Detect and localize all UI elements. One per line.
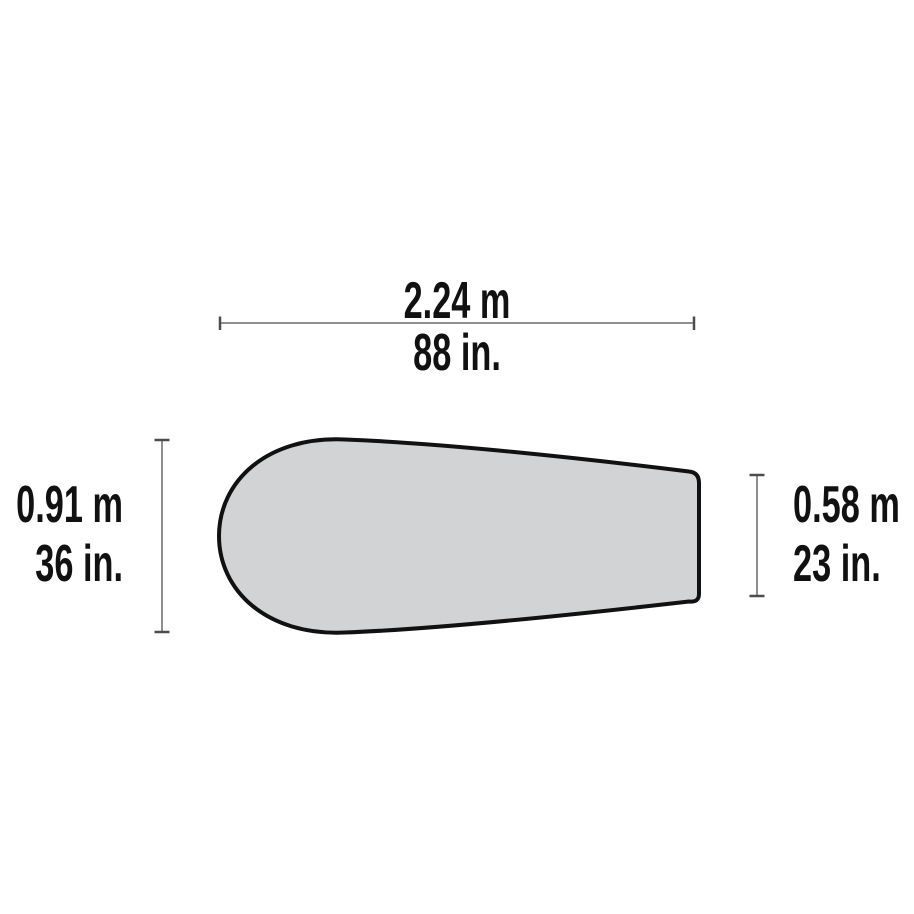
product-outline-shape — [219, 439, 699, 632]
foot-width-label-imperial: 23 in. — [793, 535, 881, 593]
length-label-metric: 2.24 m — [404, 272, 511, 330]
head-width-label-imperial: 36 in. — [35, 535, 123, 593]
length-label-imperial: 88 in. — [413, 324, 501, 382]
head-width-label-metric: 0.91 m — [16, 476, 123, 534]
foot-width-label-metric: 0.58 m — [793, 476, 900, 534]
dimension-diagram: 2.24 m 88 in. 0.91 m 36 in. 0.58 m 23 in… — [0, 0, 914, 914]
diagram-canvas: 2.24 m 88 in. 0.91 m 36 in. 0.58 m 23 in… — [0, 0, 914, 914]
